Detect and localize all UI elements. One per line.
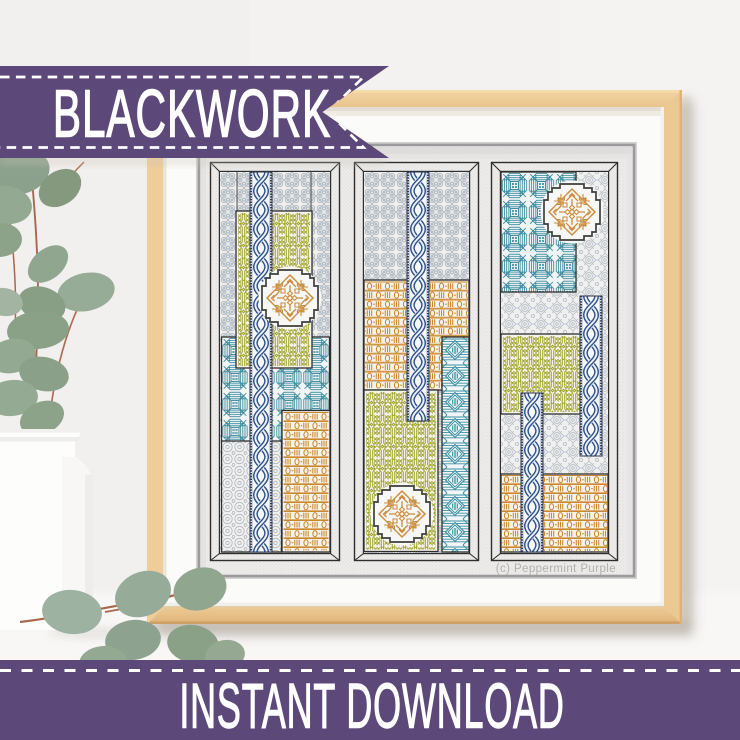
svg-text:(c) Peppermint Purple: (c) Peppermint Purple: [496, 563, 616, 575]
svg-text:INSTANT DOWNLOAD: INSTANT DOWNLOAD: [179, 671, 564, 740]
svg-text:BLACKWORK: BLACKWORK: [53, 75, 331, 150]
